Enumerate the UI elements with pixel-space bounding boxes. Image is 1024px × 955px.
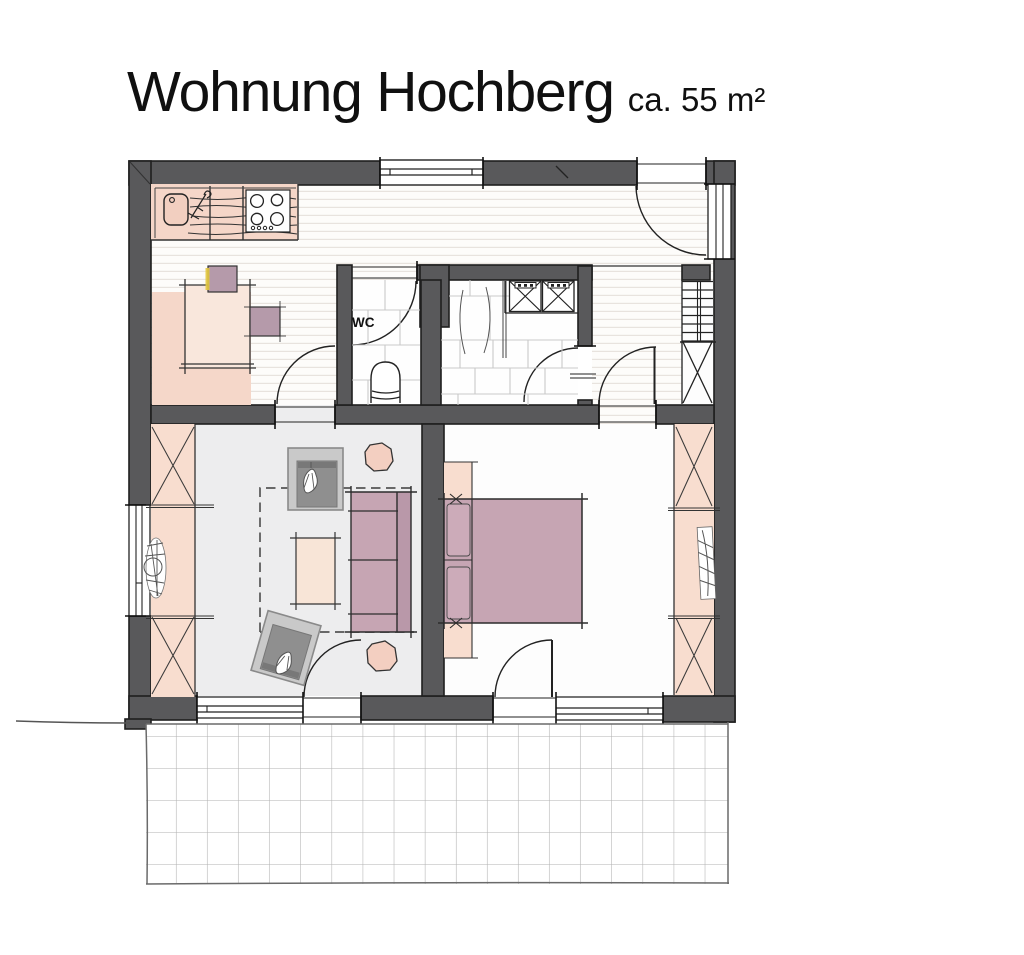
- svg-text:WC: WC: [352, 315, 375, 330]
